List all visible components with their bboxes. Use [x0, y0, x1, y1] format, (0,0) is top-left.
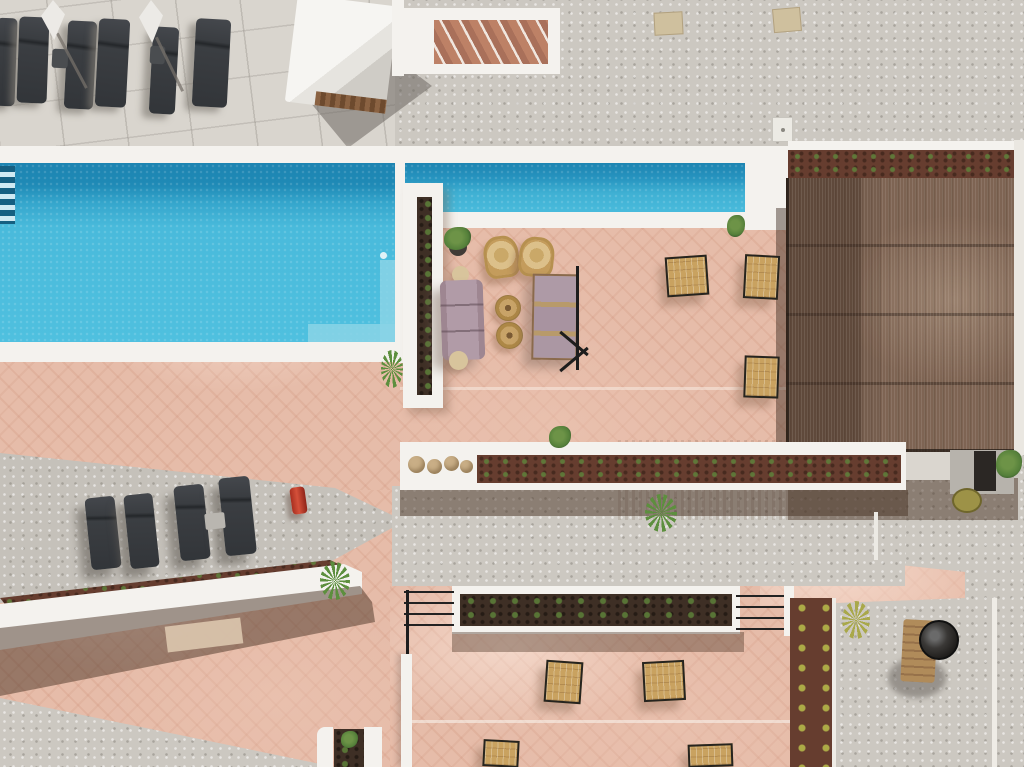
planter-vertical-soil — [417, 197, 432, 395]
pool-lap-lane — [403, 163, 745, 213]
curb-bed — [832, 598, 836, 767]
long-planter-soil — [477, 455, 901, 483]
kitchen-dark-panel — [974, 451, 996, 491]
pool-skimmer — [380, 252, 387, 259]
plant-yellow-green — [842, 601, 870, 639]
pool-bench-step — [308, 324, 397, 342]
pool-coping-top — [0, 146, 790, 164]
fixture-dot — [781, 128, 785, 132]
bistro-table-set — [544, 660, 584, 704]
kitchen-stool — [952, 488, 982, 513]
pergola-planter — [788, 150, 1016, 180]
decorative-stone — [427, 459, 442, 474]
curb-right — [364, 727, 382, 767]
white-wall-right — [1014, 140, 1024, 455]
bistro-table-set — [743, 254, 780, 300]
side-table-round — [449, 351, 468, 370]
sun-lounger — [95, 18, 131, 108]
terracotta-line — [400, 387, 790, 390]
reed-pergola-roof — [786, 178, 1018, 452]
bistro-table-set — [688, 743, 734, 767]
curb-left — [317, 727, 333, 767]
railing-left — [404, 591, 454, 628]
white-wall-bottom — [401, 654, 412, 767]
sun-lounger — [17, 17, 50, 104]
staircase-steps — [434, 20, 548, 64]
cabana — [285, 0, 398, 114]
sun-lounger — [0, 18, 18, 107]
service-hatch — [653, 11, 683, 35]
bistro-table-set — [743, 355, 779, 398]
platform-side-table — [204, 512, 226, 530]
plant-in-gravel — [645, 494, 677, 532]
pool-coping-bottom — [0, 342, 420, 362]
pergola-shadow-left — [776, 208, 788, 452]
wicker-armchair — [517, 235, 556, 278]
sun-lounger — [192, 18, 232, 108]
planting-bed-right — [790, 598, 834, 767]
decorative-stone — [460, 460, 473, 473]
outdoor-sofa — [440, 279, 486, 360]
curb-far-right — [992, 598, 997, 767]
bistro-table-set — [482, 739, 519, 767]
wicker-drum-table — [496, 322, 523, 349]
decorative-stone — [444, 456, 459, 471]
bistro-table-set — [642, 660, 686, 702]
aerial-photo-canvas — [0, 0, 1024, 767]
sun-lounger — [64, 20, 98, 109]
service-hatch — [772, 7, 802, 33]
white-line-small — [874, 512, 878, 560]
lower-planter-soil — [460, 594, 732, 626]
swimming-pool — [0, 163, 397, 343]
small-palm — [381, 350, 403, 388]
double-sun-bed — [531, 274, 578, 361]
lower-planter-shadow — [452, 632, 744, 652]
decorative-stone — [408, 456, 425, 473]
bistro-table-set — [665, 255, 710, 298]
tile-seam — [412, 720, 790, 723]
plant-agave — [320, 562, 350, 600]
railing-right — [736, 595, 788, 631]
bbq-kettle-grill — [919, 620, 959, 660]
wicker-drum-table — [495, 295, 521, 321]
pool-coping-lane-bottom — [397, 212, 747, 228]
railing-post — [406, 590, 409, 660]
pool-fixture — [772, 117, 793, 142]
pool-ladder — [0, 166, 15, 224]
